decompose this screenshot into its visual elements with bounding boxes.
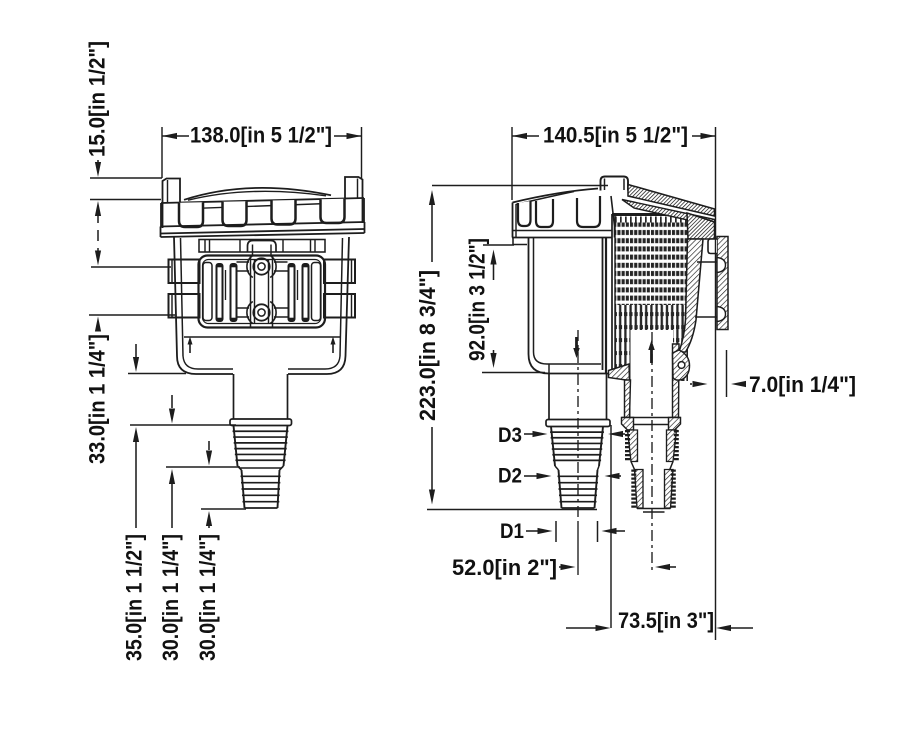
svg-text:73.5[in 3"]: 73.5[in 3"] [618, 608, 714, 633]
svg-text:138.0[in 5 1/2"]: 138.0[in 5 1/2"] [190, 123, 332, 148]
svg-text:D1: D1 [500, 520, 524, 543]
svg-text:223.0[in 8 3/4"]: 223.0[in 8 3/4"] [415, 270, 440, 421]
svg-text:15.0[in 1/2"]: 15.0[in 1/2"] [85, 41, 110, 157]
svg-text:52.0[in 2"]: 52.0[in 2"] [452, 555, 557, 580]
svg-text:30.0[in 1 1/4"]: 30.0[in 1 1/4"] [195, 534, 220, 661]
svg-text:30.0[in 1 1/4"]: 30.0[in 1 1/4"] [158, 534, 183, 661]
svg-text:D3: D3 [498, 424, 522, 447]
svg-text:D2: D2 [498, 465, 522, 488]
svg-text:33.0[in 1 1/4"]: 33.0[in 1 1/4"] [85, 334, 110, 464]
svg-text:140.5[in 5 1/2"]: 140.5[in 5 1/2"] [543, 123, 688, 148]
svg-text:92.0[in 3 1/2"]: 92.0[in 3 1/2"] [465, 238, 490, 361]
svg-text:7.0[in 1/4"]: 7.0[in 1/4"] [749, 372, 856, 397]
svg-text:35.0[in 1 1/2"]: 35.0[in 1 1/2"] [122, 534, 147, 661]
